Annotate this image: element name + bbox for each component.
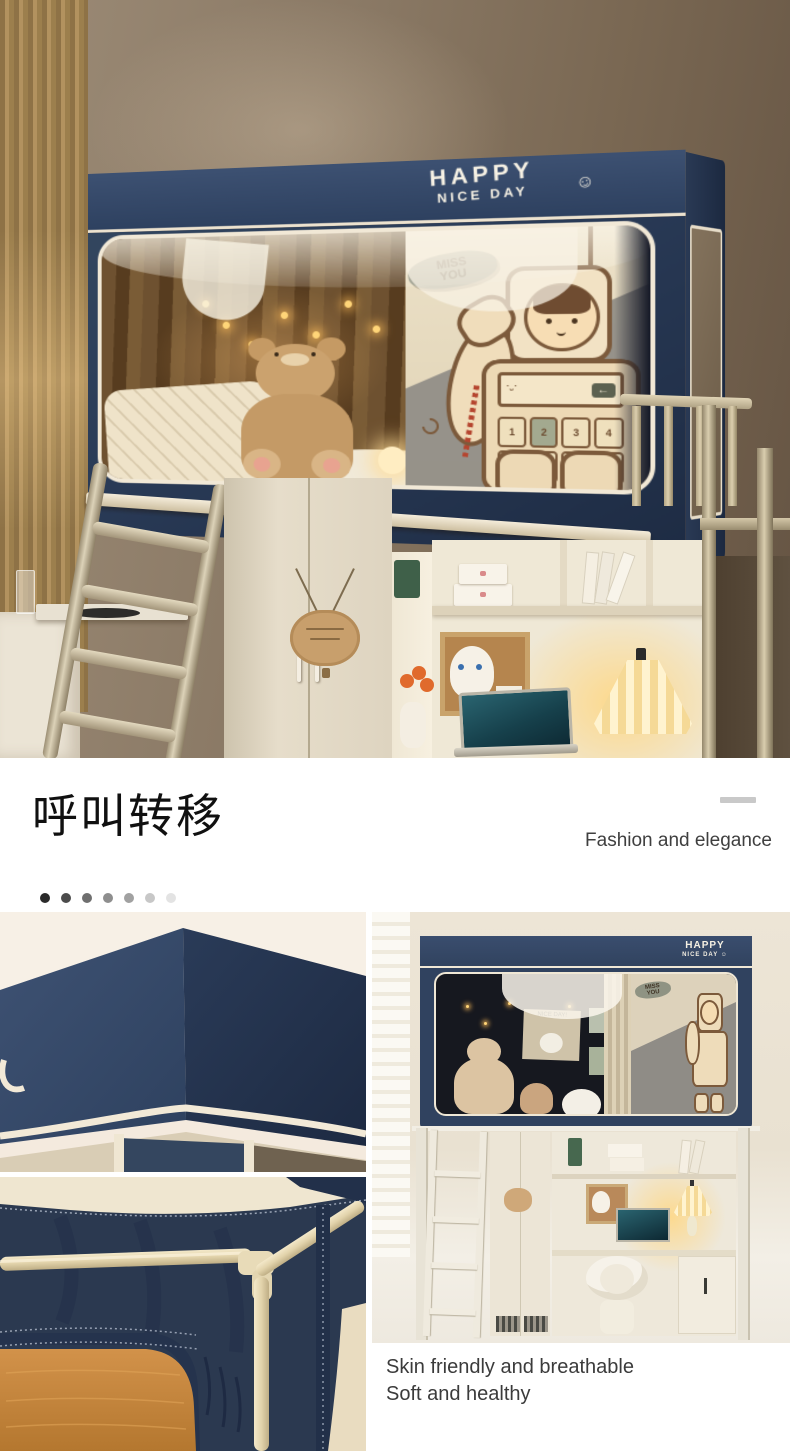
bear-body bbox=[241, 393, 354, 484]
bubble-line1: MISS bbox=[409, 251, 496, 277]
ladder-rung bbox=[433, 1216, 479, 1224]
laptop-screen bbox=[616, 1208, 670, 1242]
hero-photo: HAPPY NICE DAY ☺ bbox=[0, 0, 790, 758]
room-astronaut-art bbox=[688, 991, 730, 1109]
bear-head bbox=[256, 343, 335, 402]
ladder-rung bbox=[80, 584, 198, 617]
room-photo: HAPPY NICE DAY ☺ NICE DAY! bbox=[372, 912, 790, 1343]
string-light bbox=[345, 301, 353, 308]
sign-rope bbox=[295, 568, 319, 614]
phone-keypad: 1 2 3 4 m c % = bbox=[498, 416, 623, 484]
room-canopy-band: HAPPY NICE DAY ☺ bbox=[420, 936, 752, 968]
books bbox=[582, 552, 642, 606]
night-light-orb bbox=[378, 447, 407, 475]
screen-face: ˙ᵕ˙ bbox=[506, 384, 517, 395]
caption-text: Skin friendly and breathable Soft and he… bbox=[386, 1354, 634, 1408]
phone-handset bbox=[450, 287, 523, 354]
bear-foot bbox=[312, 450, 351, 482]
keypad-key: m bbox=[498, 451, 526, 483]
pager-dot bbox=[82, 893, 92, 903]
phone-cord bbox=[462, 385, 479, 457]
small-bear bbox=[520, 1083, 553, 1114]
pager-dot bbox=[145, 893, 155, 903]
vertical-pole bbox=[254, 1277, 269, 1451]
room-laptop bbox=[616, 1208, 670, 1244]
voile-drape bbox=[178, 238, 269, 323]
bear-ear bbox=[317, 338, 346, 361]
storage-box bbox=[459, 564, 507, 584]
caption-line1: Skin friendly and breathable bbox=[386, 1354, 634, 1381]
room-canopy-print: HAPPY NICE DAY ☺ bbox=[670, 940, 740, 959]
room-print-line1: HAPPY bbox=[670, 940, 740, 952]
ladder-rung bbox=[69, 647, 187, 680]
green-calendar bbox=[568, 1138, 582, 1166]
chair-knot bbox=[600, 1264, 634, 1294]
teddy-bear bbox=[233, 343, 361, 484]
cat-art bbox=[592, 1191, 610, 1213]
bear-pad bbox=[323, 458, 340, 473]
desk-cabinet bbox=[678, 1256, 736, 1334]
laptop bbox=[460, 690, 576, 758]
caption-line2: Soft and healthy bbox=[386, 1381, 634, 1408]
storage-box bbox=[608, 1144, 642, 1157]
white-ball-light bbox=[562, 1089, 601, 1116]
guardrail-bar bbox=[632, 406, 641, 506]
keypad-key: 2 bbox=[530, 416, 559, 448]
room-print-line2: NICE DAY ☺ bbox=[670, 952, 740, 959]
cabinet-handle bbox=[704, 1278, 707, 1294]
ladder-rung bbox=[92, 521, 210, 554]
storage-box bbox=[610, 1158, 644, 1171]
bear-foot bbox=[243, 448, 281, 479]
room-printed-curtain: MISS YOU bbox=[631, 974, 736, 1114]
raised-arm bbox=[685, 1021, 700, 1065]
girl-face bbox=[524, 282, 599, 351]
inner-warm-glow bbox=[151, 282, 388, 434]
guardrail-bar bbox=[664, 406, 673, 506]
astro-leg bbox=[694, 1093, 708, 1113]
lamp-base bbox=[687, 1216, 697, 1236]
miss-you-bubble: MISS YOU bbox=[406, 246, 501, 295]
pager-dot bbox=[124, 893, 134, 903]
bear-ear bbox=[248, 338, 276, 360]
smiley-icon: ☺ bbox=[572, 170, 597, 195]
desk-calendar bbox=[394, 560, 420, 598]
girl-eye bbox=[545, 319, 551, 325]
raised-arm bbox=[430, 316, 534, 454]
room-wardrobe bbox=[490, 1132, 550, 1336]
curtain-gray-section bbox=[405, 225, 650, 491]
sign-rope bbox=[331, 568, 355, 614]
bear-pad bbox=[254, 457, 271, 472]
panda-face bbox=[539, 1033, 562, 1054]
vent-grill bbox=[496, 1316, 520, 1332]
bear-head bbox=[467, 1038, 501, 1065]
decor-dash bbox=[720, 797, 756, 803]
back-key: ← bbox=[591, 383, 615, 397]
shelf-board bbox=[552, 1174, 736, 1179]
plush-chair bbox=[578, 1256, 656, 1336]
box-handle bbox=[480, 571, 486, 576]
bear-eye bbox=[312, 352, 316, 356]
sign-board bbox=[290, 610, 360, 666]
glass-cup bbox=[16, 570, 35, 614]
pager-dot bbox=[61, 893, 71, 903]
lamp-shade bbox=[594, 660, 692, 734]
orange-flower bbox=[396, 664, 440, 708]
room-canopy-window: NICE DAY! MISS YOU bbox=[434, 972, 738, 1116]
dark-side-panel bbox=[716, 556, 790, 758]
antenna bbox=[588, 220, 593, 272]
ladder-rail bbox=[162, 483, 229, 758]
room-table-lamp bbox=[670, 1180, 716, 1244]
girl-hair bbox=[533, 285, 590, 314]
storage-boxes bbox=[454, 560, 512, 606]
astro-leg bbox=[561, 451, 623, 496]
cat-eye bbox=[458, 664, 464, 670]
bed-post bbox=[757, 448, 773, 758]
voile-drape bbox=[405, 220, 578, 312]
product-detail-page: HAPPY NICE DAY ☺ bbox=[0, 0, 790, 1451]
hanging-wood-sign bbox=[282, 566, 368, 678]
sign-text-mark bbox=[306, 628, 344, 630]
girl-eye bbox=[572, 318, 578, 324]
chair-base bbox=[600, 1300, 634, 1334]
shelf-divider bbox=[560, 540, 567, 606]
curtain-glow bbox=[0, 230, 88, 530]
swirl-doodle bbox=[418, 415, 442, 438]
string-light bbox=[280, 311, 287, 318]
shelf-divider bbox=[646, 540, 653, 606]
ladder-rung bbox=[430, 1308, 476, 1316]
canopy-print-line2: NICE DAY bbox=[398, 181, 569, 209]
pager-dot bbox=[40, 893, 50, 903]
string-light bbox=[223, 322, 230, 329]
sheer-voile bbox=[102, 220, 651, 292]
keypad-key: 3 bbox=[562, 417, 591, 449]
ladder-rung bbox=[434, 1170, 480, 1178]
lamp-finial bbox=[636, 648, 646, 662]
astro-leg bbox=[710, 1093, 724, 1113]
detail-photo-canopy-corner bbox=[0, 912, 366, 1172]
ladder-rung bbox=[431, 1262, 477, 1270]
cat-eye bbox=[476, 664, 482, 670]
box-handle bbox=[480, 592, 486, 597]
keypad-key: % bbox=[562, 452, 591, 484]
frame-pipe bbox=[244, 1140, 254, 1172]
girl-smile bbox=[556, 327, 566, 335]
table-lamp bbox=[584, 648, 702, 758]
ladder-rail bbox=[473, 1132, 487, 1338]
phone-screen: ˙ᵕ˙ ← bbox=[498, 372, 623, 408]
bubble-line2: YOU bbox=[410, 263, 497, 289]
phone-body: ˙ᵕ˙ ← 1 2 3 4 m c % bbox=[482, 359, 641, 496]
bed-side-rail bbox=[700, 518, 790, 530]
frame-pipe bbox=[114, 1134, 124, 1172]
guardrail-bar bbox=[728, 406, 737, 506]
window-light bbox=[372, 912, 410, 1257]
pager-dot bbox=[166, 893, 176, 903]
detail-photo-frame-corner bbox=[0, 1177, 366, 1451]
flower-vase bbox=[400, 702, 426, 748]
mini-wood-sign bbox=[504, 1188, 532, 1212]
room-miss-you-bubble: MISS YOU bbox=[634, 980, 672, 1001]
helmet bbox=[506, 264, 613, 362]
inner-blackout-curtain bbox=[102, 231, 406, 485]
room-ladder bbox=[423, 1130, 488, 1338]
string-light bbox=[312, 331, 319, 338]
ladder-rung bbox=[58, 710, 176, 743]
keypad-key: 1 bbox=[498, 416, 526, 448]
pager-dots bbox=[40, 893, 187, 905]
room-desk-hutch bbox=[552, 1132, 736, 1336]
pager-dot bbox=[103, 893, 113, 903]
canopy-print-line1: HAPPY bbox=[397, 155, 569, 196]
keypad-key: c bbox=[530, 451, 559, 483]
section-heading: 呼叫转移 bbox=[32, 780, 224, 846]
sheer-voile bbox=[502, 972, 622, 1019]
string-light bbox=[372, 326, 380, 333]
bed-post bbox=[702, 405, 716, 758]
string-light bbox=[202, 300, 209, 307]
room-bed-post bbox=[738, 1128, 750, 1340]
wardrobe-door-gap bbox=[520, 1132, 521, 1336]
shelf-board bbox=[432, 606, 706, 615]
canopy-window: MISS YOU bbox=[98, 220, 656, 495]
string-light bbox=[466, 1005, 469, 1008]
bed-guardrail bbox=[620, 396, 752, 508]
bear-eye bbox=[275, 352, 279, 356]
sign-text-mark bbox=[310, 638, 340, 640]
bear-muzzle bbox=[281, 353, 310, 366]
canopy-print: HAPPY NICE DAY ☺ bbox=[397, 155, 569, 210]
lamp-shade bbox=[674, 1186, 712, 1216]
flower-petal bbox=[420, 678, 434, 692]
room-bed-canopy: HAPPY NICE DAY ☺ NICE DAY! bbox=[420, 936, 752, 1128]
room-teddy-bear bbox=[454, 1058, 514, 1114]
section-tagline: Fashion and elegance bbox=[585, 830, 772, 852]
printed-curtain: MISS YOU bbox=[405, 225, 650, 491]
storage-box bbox=[454, 584, 512, 606]
string-light bbox=[249, 341, 256, 348]
sign-bell bbox=[322, 668, 330, 678]
astro-leg bbox=[495, 450, 556, 496]
string-light bbox=[484, 1022, 487, 1025]
vent-grill bbox=[524, 1316, 548, 1332]
